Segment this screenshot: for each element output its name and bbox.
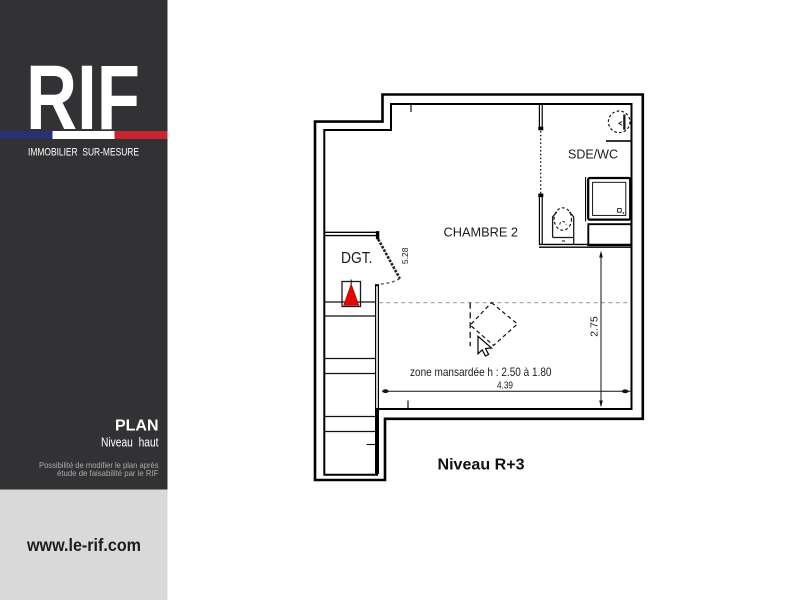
svg-text:étude de faisabilité par le RI: étude de faisabilité par le RIF [57,468,159,478]
svg-text:Niveau R+3: Niveau R+3 [438,457,525,474]
svg-text:Niveau haut: Niveau haut [101,436,159,450]
svg-text:5.28: 5.28 [400,247,410,264]
svg-text:www.le-rif.com: www.le-rif.com [26,535,141,555]
svg-text:PLAN: PLAN [115,418,159,435]
svg-text:zone mansardée h : 2.50 à 1.80: zone mansardée h : 2.50 à 1.80 [410,365,552,379]
svg-text:DGT.: DGT. [341,250,373,267]
svg-text:4.39: 4.39 [497,380,513,391]
svg-text:CHAMBRE 2: CHAMBRE 2 [444,225,519,240]
svg-text:IMMOBILIER SUR-MESURE: IMMOBILIER SUR-MESURE [28,147,139,159]
svg-text:2.75: 2.75 [588,316,600,337]
svg-text:SDE/WC: SDE/WC [568,147,618,162]
